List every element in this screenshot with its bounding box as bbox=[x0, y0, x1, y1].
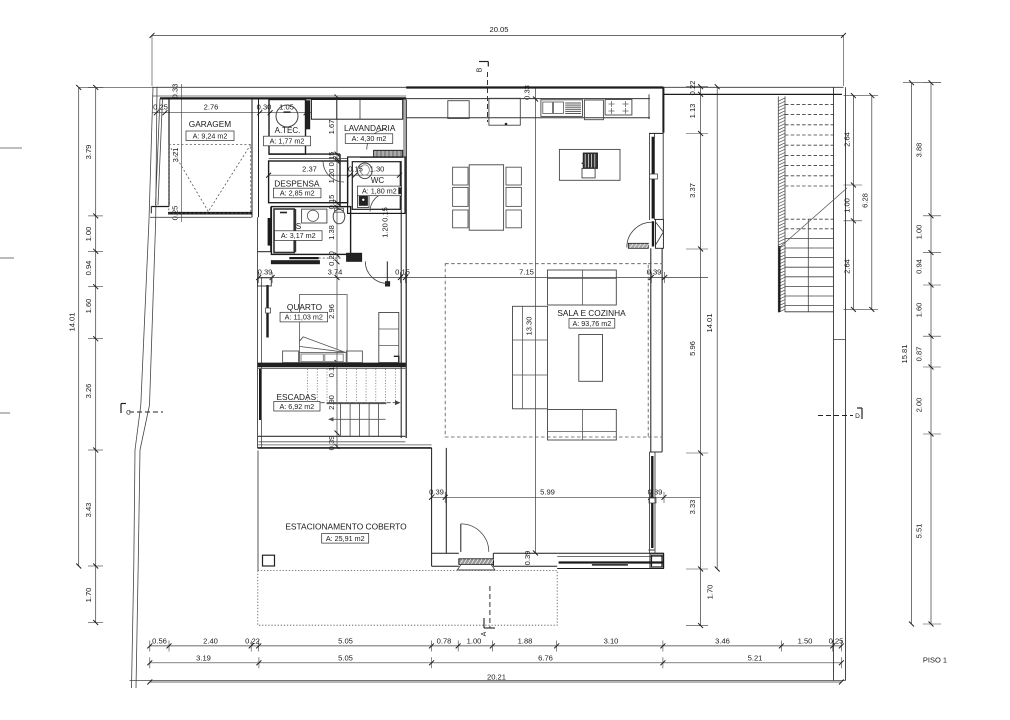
svg-text:ESCADAS: ESCADAS bbox=[276, 392, 316, 402]
svg-text:1.88: 1.88 bbox=[518, 636, 533, 645]
svg-text:1.13: 1.13 bbox=[688, 104, 697, 119]
svg-text:WC: WC bbox=[371, 176, 385, 185]
svg-text:A: 25,91 m2: A: 25,91 m2 bbox=[326, 534, 365, 543]
svg-text:3.37: 3.37 bbox=[688, 183, 697, 198]
svg-text:1.50: 1.50 bbox=[798, 636, 813, 645]
svg-text:A: A bbox=[481, 631, 488, 636]
svg-text:13.30: 13.30 bbox=[525, 316, 534, 335]
svg-text:0.39: 0.39 bbox=[258, 267, 273, 276]
svg-text:QUARTO: QUARTO bbox=[287, 302, 323, 312]
svg-text:3.46: 3.46 bbox=[715, 636, 730, 645]
svg-text:S: S bbox=[296, 222, 301, 231]
svg-text:A: 2,85 m2: A: 2,85 m2 bbox=[280, 189, 315, 198]
svg-text:A: 93,76 m2: A: 93,76 m2 bbox=[573, 319, 612, 328]
svg-text:3.43: 3.43 bbox=[84, 503, 93, 518]
svg-text:3.33: 3.33 bbox=[688, 500, 697, 515]
svg-text:1.20: 1.20 bbox=[381, 223, 390, 238]
svg-text:0.87: 0.87 bbox=[915, 347, 924, 362]
svg-text:20.21: 20.21 bbox=[487, 672, 506, 681]
svg-text:1.20: 1.20 bbox=[327, 169, 336, 184]
svg-text:0.25: 0.25 bbox=[829, 636, 844, 645]
svg-text:PISO 1: PISO 1 bbox=[923, 656, 947, 665]
svg-text:3.19: 3.19 bbox=[196, 654, 211, 663]
svg-text:1.00: 1.00 bbox=[843, 198, 852, 213]
svg-text:2.00: 2.00 bbox=[915, 398, 924, 413]
svg-text:1.38: 1.38 bbox=[327, 225, 336, 240]
svg-text:1.67: 1.67 bbox=[327, 120, 336, 135]
svg-text:15.81: 15.81 bbox=[900, 344, 909, 363]
svg-text:D: D bbox=[855, 413, 860, 420]
svg-text:5.99: 5.99 bbox=[540, 487, 555, 496]
svg-text:0.78: 0.78 bbox=[437, 636, 452, 645]
svg-text:5.51: 5.51 bbox=[915, 524, 924, 539]
svg-text:14.01: 14.01 bbox=[68, 312, 77, 331]
svg-text:2.40: 2.40 bbox=[203, 636, 218, 645]
svg-text:3.88: 3.88 bbox=[915, 143, 924, 158]
svg-text:20.05: 20.05 bbox=[489, 25, 508, 34]
svg-text:0.56: 0.56 bbox=[152, 636, 167, 645]
svg-text:0.94: 0.94 bbox=[84, 261, 93, 276]
svg-text:A: 9,24 m2: A: 9,24 m2 bbox=[193, 131, 228, 140]
svg-text:5.05: 5.05 bbox=[338, 636, 353, 645]
svg-text:1.60: 1.60 bbox=[84, 299, 93, 314]
svg-text:5.05: 5.05 bbox=[338, 654, 353, 663]
svg-text:6.28: 6.28 bbox=[861, 193, 870, 208]
svg-text:5.21: 5.21 bbox=[748, 654, 763, 663]
svg-text:1.60: 1.60 bbox=[915, 303, 924, 318]
svg-text:0.25: 0.25 bbox=[153, 103, 168, 112]
svg-text:1.70: 1.70 bbox=[706, 585, 715, 600]
svg-text:0.15: 0.15 bbox=[395, 267, 410, 276]
svg-text:A: 6,92 m2: A: 6,92 m2 bbox=[280, 402, 315, 411]
svg-text:2.96: 2.96 bbox=[327, 304, 336, 319]
svg-text:A.TÉC.: A.TÉC. bbox=[275, 126, 301, 135]
svg-text:2.64: 2.64 bbox=[843, 259, 852, 274]
svg-text:A: 11,03 m2: A: 11,03 m2 bbox=[285, 313, 323, 322]
svg-text:0.94: 0.94 bbox=[915, 259, 924, 274]
svg-text:1.00: 1.00 bbox=[915, 225, 924, 240]
svg-text:0.22: 0.22 bbox=[688, 81, 697, 96]
svg-text:7.15: 7.15 bbox=[519, 267, 534, 276]
svg-text:2.64: 2.64 bbox=[843, 132, 852, 147]
svg-text:SALA E COZINHA: SALA E COZINHA bbox=[557, 308, 626, 318]
svg-text:2.76: 2.76 bbox=[204, 103, 219, 112]
svg-text:B: B bbox=[477, 67, 484, 72]
svg-text:0.15: 0.15 bbox=[327, 363, 336, 378]
svg-text:A: 1,80 m2: A: 1,80 m2 bbox=[362, 187, 397, 196]
svg-text:A: 1,77 m2: A: 1,77 m2 bbox=[270, 137, 305, 146]
svg-text:2.37: 2.37 bbox=[302, 165, 317, 174]
svg-text:DESPENSA: DESPENSA bbox=[274, 178, 320, 188]
svg-text:A: 3,17 m2: A: 3,17 m2 bbox=[281, 231, 316, 240]
svg-text:3.79: 3.79 bbox=[84, 145, 93, 160]
svg-text:1.00: 1.00 bbox=[467, 636, 482, 645]
svg-text:1.00: 1.00 bbox=[84, 227, 93, 242]
svg-text:C: C bbox=[126, 410, 131, 417]
svg-text:3.21: 3.21 bbox=[171, 148, 180, 163]
svg-text:3.26: 3.26 bbox=[84, 384, 93, 399]
svg-text:0.39: 0.39 bbox=[647, 267, 662, 276]
svg-text:ESTACIONAMENTO COBERTO: ESTACIONAMENTO COBERTO bbox=[285, 522, 407, 532]
svg-text:GARAGEM: GARAGEM bbox=[189, 119, 232, 129]
svg-text:14.01: 14.01 bbox=[705, 313, 714, 332]
svg-text:LAVANDARIA: LAVANDARIA bbox=[344, 123, 396, 133]
svg-text:1.05: 1.05 bbox=[279, 103, 294, 112]
svg-text:6.76: 6.76 bbox=[538, 654, 553, 663]
svg-text:3.10: 3.10 bbox=[604, 636, 619, 645]
svg-text:A: 4,30 m2: A: 4,30 m2 bbox=[352, 134, 387, 143]
svg-text:0.22: 0.22 bbox=[245, 636, 260, 645]
svg-text:5.96: 5.96 bbox=[688, 341, 697, 356]
svg-text:1.70: 1.70 bbox=[84, 588, 93, 603]
